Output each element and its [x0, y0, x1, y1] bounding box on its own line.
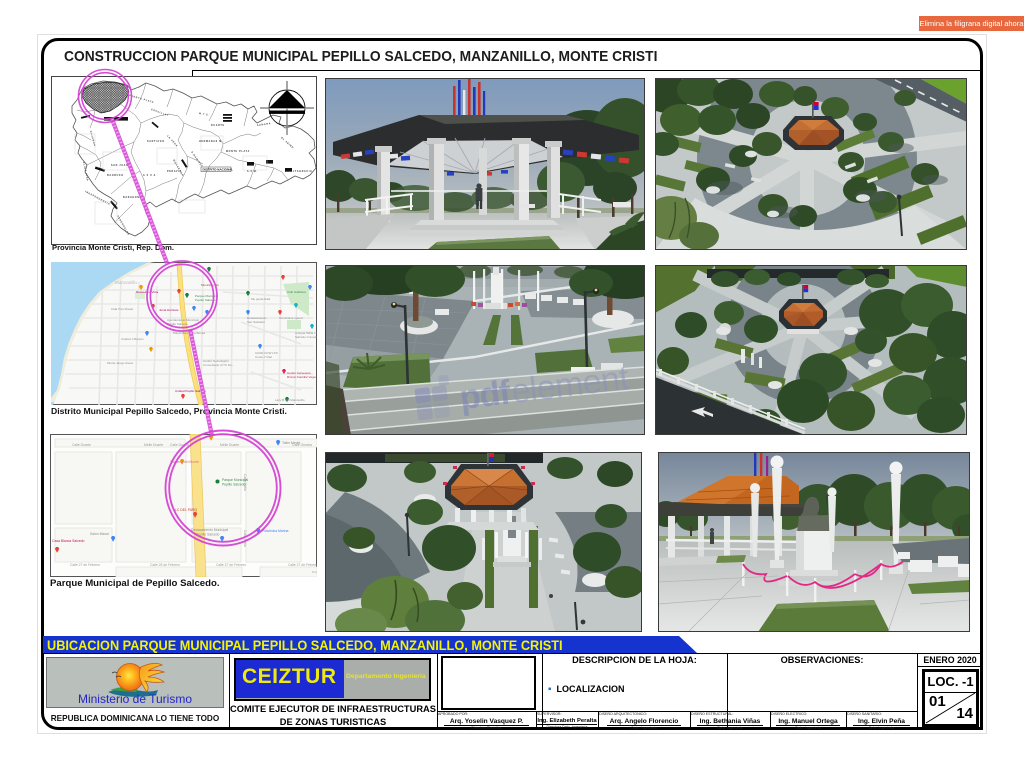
- svg-text:Me gusta Haiti: Me gusta Haiti: [251, 297, 271, 301]
- svg-text:Curso Y Dial: Curso Y Dial: [255, 355, 272, 359]
- svg-text:Playa Manzanillo Bonita: Playa Manzanillo Bonita: [173, 331, 205, 335]
- svg-text:Pepillo Salcedo: Pepillo Salcedo: [222, 483, 245, 487]
- svg-text:Taller Medel: Taller Medel: [282, 441, 301, 445]
- svg-text:Calle Duarte: Calle Duarte: [170, 443, 189, 447]
- svg-text:Casa Blanca Salcedo: Casa Blanca Salcedo: [52, 539, 85, 543]
- svg-text:Melle Duarte: Melle Duarte: [220, 443, 239, 447]
- svg-text:Calle Mella: Calle Mella: [243, 530, 247, 547]
- svg-text:DUARTE: DUARTE: [211, 124, 225, 127]
- svg-text:Calle 25 de Febrero: Calle 25 de Febrero: [150, 563, 180, 567]
- svg-text:Pepillo Salcedo: Pepillo Salcedo: [167, 322, 188, 326]
- svg-text:SANTIAGO: SANTIAGO: [147, 140, 165, 143]
- svg-text:BARAHONA: BARAHONA: [123, 196, 142, 199]
- svg-text:element: element: [509, 359, 631, 411]
- svg-text:Terms N..: Terms N..: [312, 570, 317, 574]
- svg-text:Salcedo Comedor: Salcedo Comedor: [295, 335, 317, 339]
- svg-text:Club Gallistico: Club Gallistico: [287, 290, 307, 294]
- svg-text:Junta Del Este: Junta Del Este: [159, 308, 179, 312]
- svg-text:pdf: pdf: [458, 373, 514, 417]
- svg-text:BAORUCO: BAORUCO: [107, 174, 124, 177]
- svg-text:Calle 27 de Febrero: Calle 27 de Febrero: [70, 563, 100, 567]
- svg-text:Manzanillo: Manzanillo: [115, 280, 137, 285]
- svg-text:Pepillo Salcedo: Pepillo Salcedo: [196, 533, 219, 537]
- svg-text:Rincon Familiar Vega: Rincon Familiar Vega: [287, 375, 316, 379]
- svg-text:S.P.M.: S.P.M.: [247, 171, 258, 173]
- svg-text:Calle Duarte: Calle Duarte: [72, 443, 91, 447]
- svg-text:DISTRITO NACIONAL: DISTRITO NACIONAL: [203, 168, 234, 172]
- svg-text:Taqueria del Monte: Taqueria del Monte: [170, 460, 199, 464]
- svg-text:PERAVIA: PERAVIA: [167, 170, 182, 173]
- svg-text:LC DEL PARQ: LC DEL PARQ: [175, 508, 197, 512]
- svg-text:HERMANAS M.: HERMANAS M.: [199, 140, 223, 143]
- svg-text:SAN JUAN: SAN JUAN: [111, 164, 128, 167]
- svg-text:Parque Municipal: Parque Municipal: [222, 478, 248, 482]
- svg-text:Ciudad J Manolo: Ciudad J Manolo: [121, 337, 144, 341]
- svg-text:Municipio Pto: Municipio Pto: [201, 283, 219, 287]
- svg-text:Cala Tres Rosas: Cala Tres Rosas: [111, 307, 134, 311]
- svg-text:Calle 27 de Febrero: Calle 27 de Febrero: [288, 563, 317, 567]
- svg-text:MONTE PLATA: MONTE PLATA: [226, 150, 250, 153]
- svg-text:Monte Juego Arena: Monte Juego Arena: [107, 361, 133, 365]
- svg-text:San Salvador: San Salvador: [247, 320, 265, 324]
- svg-text:Comunitario (CTC De...: Comunitario (CTC De...: [203, 363, 235, 367]
- svg-text:Lazy B mill Manzanillo: Lazy B mill Manzanillo: [275, 398, 305, 402]
- svg-text:Salon Maval: Salon Maval: [90, 532, 109, 536]
- svg-text:Calle 27 de Febrero: Calle 27 de Febrero: [216, 563, 246, 567]
- svg-text:A Z U A: A Z U A: [143, 174, 156, 177]
- svg-text:Restaurant Vista: Restaurant Vista: [136, 290, 158, 294]
- svg-text:Unidad Pepillo Salcedo: Unidad Pepillo Salcedo: [175, 389, 206, 393]
- svg-text:Policlinica Marina: Policlinica Marina: [262, 529, 288, 533]
- svg-text:Terminal le speed: Terminal le speed: [279, 316, 303, 320]
- svg-text:Melle Duarte: Melle Duarte: [144, 443, 163, 447]
- svg-text:Pepillo Salcedo: Pepillo Salcedo: [195, 298, 216, 302]
- svg-text:Destacamento Municipal: Destacamento Municipal: [191, 528, 228, 532]
